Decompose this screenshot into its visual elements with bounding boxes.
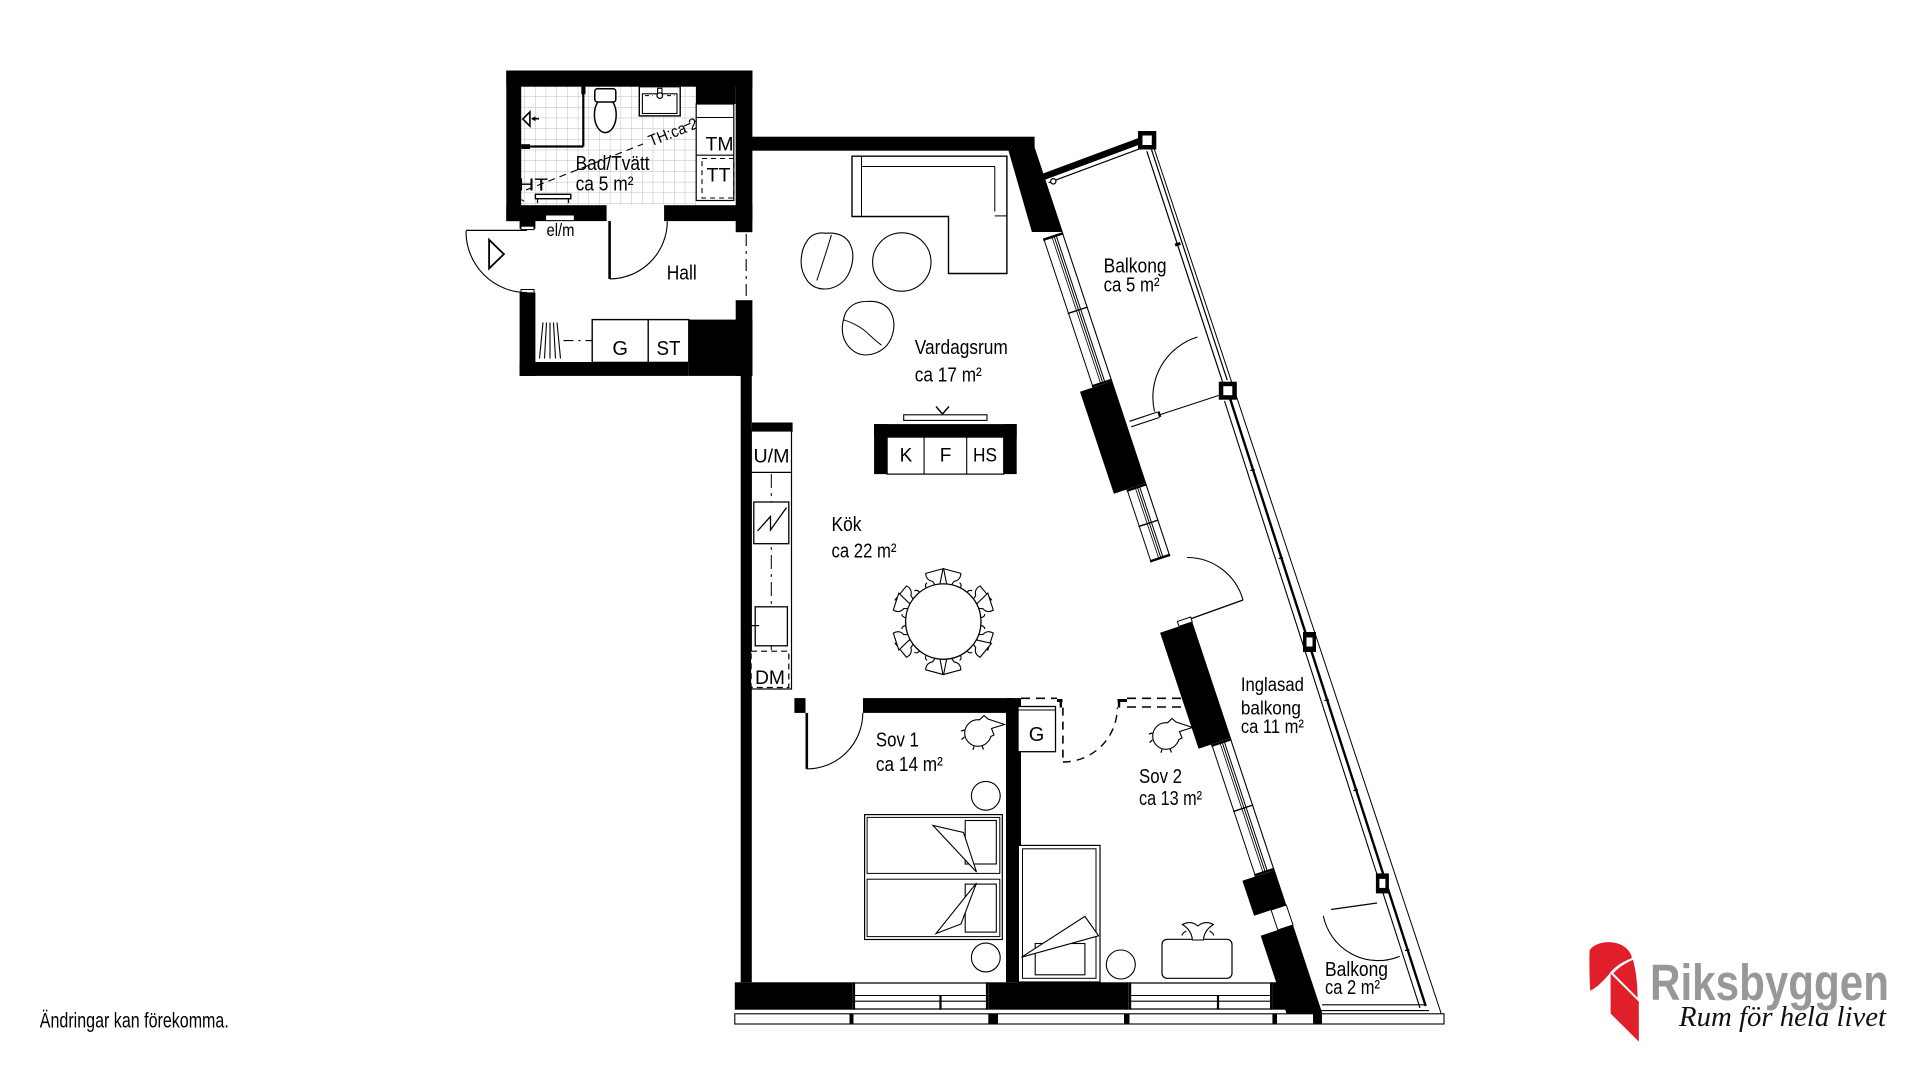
svg-text:HS: HS xyxy=(973,446,997,467)
svg-text:G: G xyxy=(1029,724,1045,746)
svg-text:ca 22 m²: ca 22 m² xyxy=(832,541,897,563)
svg-text:ST: ST xyxy=(657,338,681,360)
svg-text:Hall: Hall xyxy=(667,263,697,285)
svg-text:ca 5 m²: ca 5 m² xyxy=(1104,275,1160,297)
svg-text:ca 13 m²: ca 13 m² xyxy=(1139,788,1202,810)
svg-text:Ändringar kan förekomma.: Ändringar kan förekomma. xyxy=(40,1010,229,1033)
svg-text:Bad/Tvätt: Bad/Tvätt xyxy=(576,153,650,175)
svg-text:Kök: Kök xyxy=(832,514,863,536)
svg-text:TT: TT xyxy=(707,166,731,187)
svg-text:G: G xyxy=(612,338,628,360)
svg-text:HT: HT xyxy=(518,175,548,195)
svg-text:ca 17 m²: ca 17 m² xyxy=(915,365,982,387)
svg-text:F: F xyxy=(940,446,952,467)
svg-text:Vardagsrum: Vardagsrum xyxy=(915,337,1008,359)
svg-text:Sov 2: Sov 2 xyxy=(1139,766,1182,788)
svg-text:ca 14 m²: ca 14 m² xyxy=(876,754,943,776)
svg-text:ca 2 m²: ca 2 m² xyxy=(1325,977,1380,999)
svg-text:K: K xyxy=(900,446,913,467)
svg-text:U/M: U/M xyxy=(754,447,790,468)
svg-text:el/m: el/m xyxy=(547,220,575,240)
svg-text:DM: DM xyxy=(755,668,785,689)
svg-text:ca 11 m²: ca 11 m² xyxy=(1241,717,1304,738)
svg-text:Inglasad: Inglasad xyxy=(1241,675,1304,696)
svg-text:TM: TM xyxy=(706,135,734,156)
svg-text:ca 5 m²: ca 5 m² xyxy=(576,174,634,196)
svg-text:Sov 1: Sov 1 xyxy=(876,730,919,752)
svg-text:Rum för hela livet: Rum för hela livet xyxy=(1678,1001,1887,1033)
